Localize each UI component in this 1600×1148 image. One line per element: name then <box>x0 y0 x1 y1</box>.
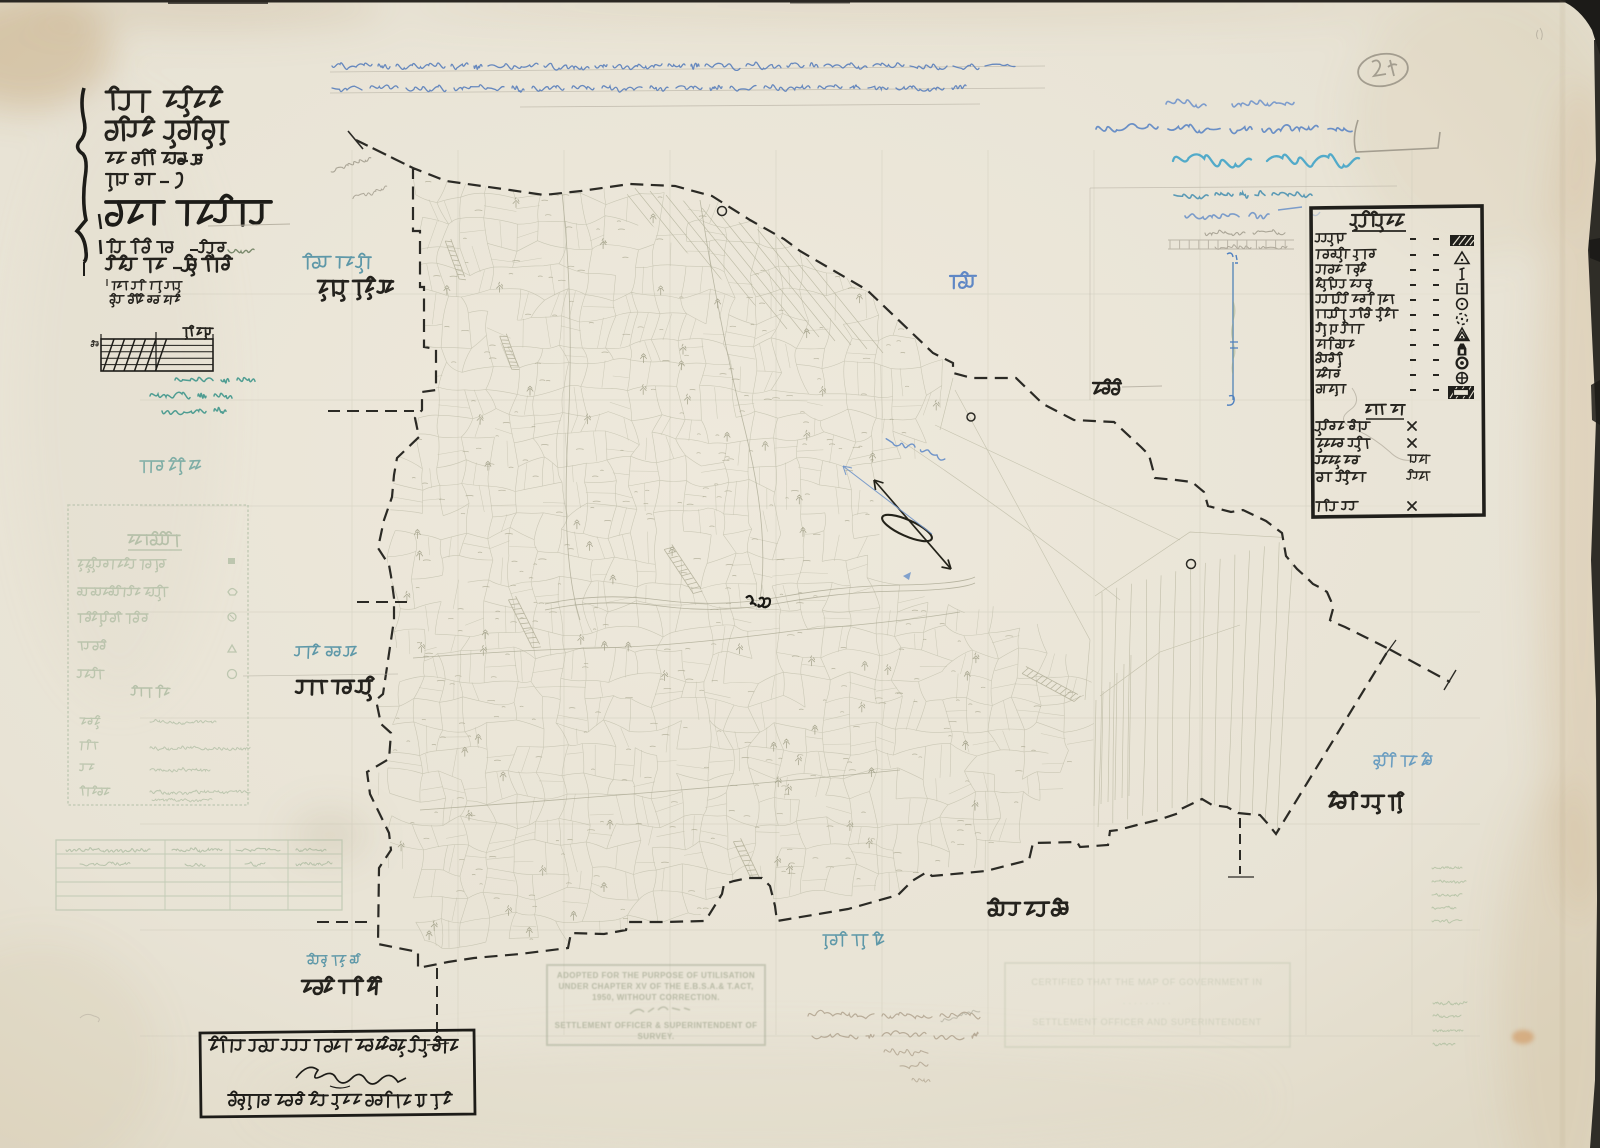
svg-text:SETTLEMENT OFFICER AND SUPERIN: SETTLEMENT OFFICER AND SUPERINTENDENT <box>1032 1017 1262 1027</box>
svg-text:SURVEY.: SURVEY. <box>638 1032 675 1041</box>
svg-text:SETTLEMENT OFFICER & SUPERINTE: SETTLEMENT OFFICER & SUPERINTENDENT OF <box>555 1021 758 1030</box>
svg-text:CERTIFIED THAT THE MAP OF GOVE: CERTIFIED THAT THE MAP OF GOVERNMENT IN <box>1031 977 1262 987</box>
svg-text:UNDER CHAPTER XV OF THE E.B.S.: UNDER CHAPTER XV OF THE E.B.S.A.& T.ACT, <box>558 982 753 991</box>
svg-text:. . . . . . . . .: . . . . . . . . . <box>1123 997 1171 1006</box>
svg-text:1950, WITHOUT CORRECTION.: 1950, WITHOUT CORRECTION. <box>592 993 720 1002</box>
svg-text:ADOPTED FOR THE PURPOSE OF UTI: ADOPTED FOR THE PURPOSE OF UTILISATION <box>557 971 755 980</box>
